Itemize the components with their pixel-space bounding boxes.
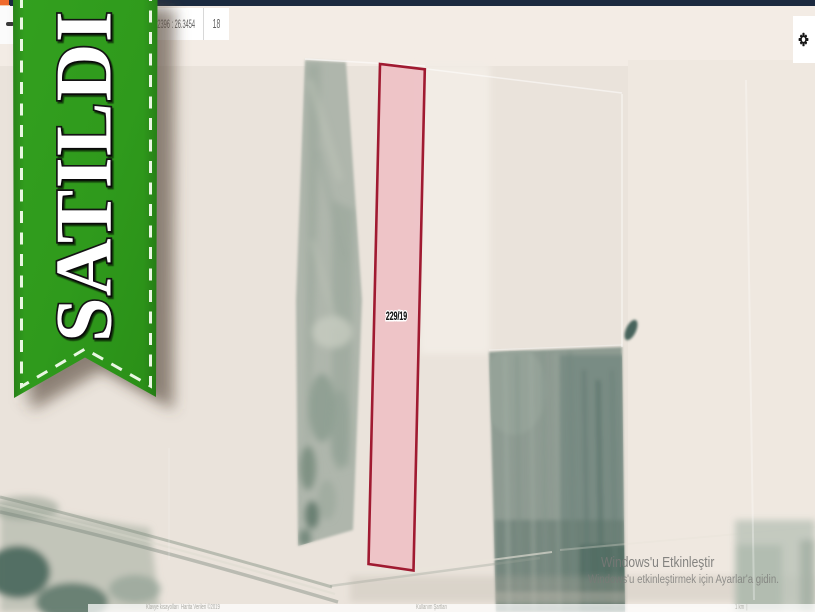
svg-text:SATILDI: SATILDI [41,10,129,342]
svg-text:229/19: 229/19 [386,310,408,323]
